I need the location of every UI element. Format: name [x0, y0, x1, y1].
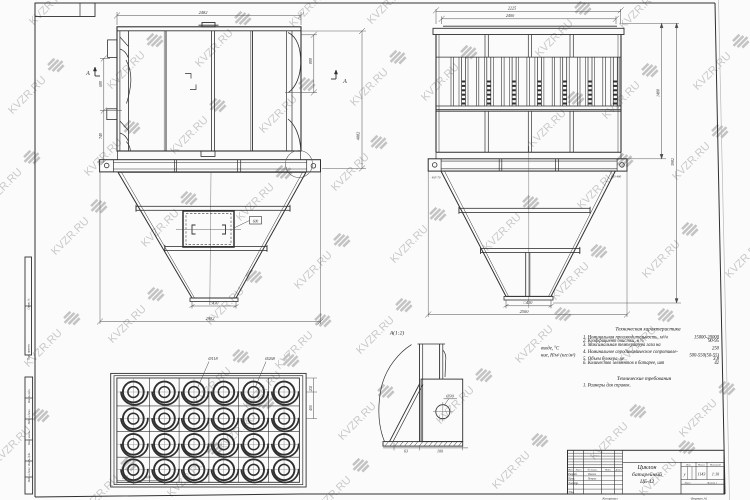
- svg-text:Ø118: Ø118: [207, 356, 218, 361]
- svg-text:740: 740: [98, 133, 103, 139]
- svg-text:42: 42: [714, 361, 719, 366]
- svg-text:4082: 4082: [356, 132, 361, 140]
- svg-text:Дата: Дата: [615, 469, 623, 472]
- svg-text:Т.контр.: Т.контр.: [568, 482, 578, 485]
- svg-text:Пров.: Пров.: [567, 478, 575, 481]
- svg-text:Лист: Лист: [575, 469, 582, 472]
- svg-text:□430: □430: [210, 301, 220, 306]
- svg-text:Масса: Масса: [697, 464, 705, 467]
- svg-text:ние, Н/м² (кгс/м²): ние, Н/м² (кгс/м²): [541, 353, 576, 359]
- svg-text:1480: 1480: [656, 89, 661, 97]
- svg-text:2225: 2225: [508, 6, 516, 11]
- svg-text:Подп.: Подп.: [604, 469, 612, 472]
- svg-text:Перв. примен.: Перв. примен.: [28, 343, 31, 361]
- svg-text:Лит.: Лит.: [685, 464, 692, 467]
- svg-text:Ø268: Ø268: [264, 356, 275, 361]
- svg-text:3. Максимальная температура га: 3. Максимальная температура газа на: [583, 343, 661, 348]
- svg-text:202: 202: [122, 476, 128, 480]
- svg-text:Техническая характеристика: Техническая характеристика: [615, 327, 681, 333]
- svg-text:А: А: [85, 71, 90, 77]
- svg-text:Циклон: Циклон: [637, 465, 657, 471]
- svg-text:Масштаб: Масштаб: [709, 464, 721, 467]
- svg-text:202: 202: [309, 386, 313, 392]
- svg-text:Справ. №: Справ. №: [28, 298, 31, 310]
- svg-text:40Г-70: 40Г-70: [432, 176, 441, 180]
- svg-text:Инв. № подл.: Инв. № подл.: [28, 388, 31, 404]
- svg-text:800: 800: [308, 58, 313, 64]
- svg-text:600: 600: [253, 219, 259, 223]
- svg-text:2500: 2500: [520, 309, 530, 314]
- svg-text:Ø30: Ø30: [445, 394, 454, 399]
- svg-text:Подп. и дата: Подп. и дата: [28, 409, 31, 426]
- svg-text:2982: 2982: [206, 316, 216, 321]
- svg-text:Изм: Изм: [567, 469, 573, 472]
- svg-text:Разраб.: Разраб.: [567, 473, 577, 476]
- svg-text:400: 400: [309, 405, 313, 411]
- svg-text:1. Размеры для справок.: 1. Размеры для справок.: [583, 383, 631, 388]
- svg-text:входе, °С: входе, °С: [541, 346, 560, 351]
- svg-text:Подп. и дата: Подп. и дата: [28, 467, 31, 484]
- svg-text:Иванов: Иванов: [587, 473, 597, 476]
- svg-text:Копировал: Копировал: [601, 496, 618, 500]
- svg-text:Листов 1: Листов 1: [706, 481, 717, 484]
- svg-text:4. Номинальное аэродинамическо: 4. Номинальное аэродинамическое сопротив…: [583, 350, 678, 355]
- svg-text:Инв.№ дубл.: Инв.№ дубл.: [28, 452, 31, 467]
- svg-text:63: 63: [404, 448, 408, 453]
- svg-text:Формат А1: Формат А1: [691, 496, 708, 500]
- svg-text:2400: 2400: [506, 13, 515, 18]
- svg-text:Петров: Петров: [587, 478, 597, 481]
- svg-text:100: 100: [437, 448, 443, 453]
- svg-text:Утв.: Утв.: [568, 491, 574, 494]
- svg-text:Технические требования: Технические требования: [617, 375, 672, 382]
- svg-text:90-95: 90-95: [708, 339, 720, 344]
- svg-text:1:10: 1:10: [712, 472, 719, 477]
- svg-text:□430: □430: [524, 300, 534, 305]
- svg-text:Взам. инв.№: Взам. инв.№: [28, 431, 31, 445]
- svg-text:ЦБ-42: ЦБ-42: [639, 478, 654, 485]
- svg-text:3982: 3982: [670, 158, 675, 166]
- svg-text:2482: 2482: [199, 10, 209, 15]
- svg-text:А: А: [342, 79, 347, 85]
- svg-text:1143: 1143: [698, 472, 706, 477]
- svg-text:у: у: [683, 472, 686, 477]
- svg-text:400: 400: [145, 476, 151, 480]
- svg-text:Лист: Лист: [684, 481, 691, 484]
- svg-text:А(1:2): А(1:2): [389, 330, 405, 337]
- svg-text:батарейный: батарейный: [632, 471, 662, 478]
- svg-text:250: 250: [712, 346, 720, 351]
- svg-text:600: 600: [98, 81, 103, 87]
- svg-text:№ докум.: № докум.: [587, 469, 598, 472]
- svg-text:6. Количество элементов в бата: 6. Количество элементов в батарее, шт: [583, 361, 665, 366]
